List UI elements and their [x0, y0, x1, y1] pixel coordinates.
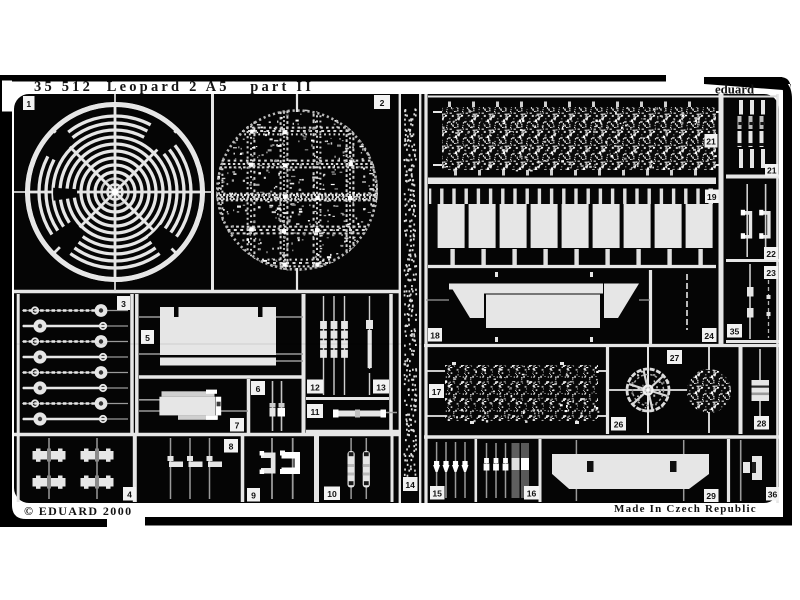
svg-text:24: 24 — [704, 331, 714, 341]
svg-text:8: 8 — [229, 441, 234, 451]
svg-text:10: 10 — [327, 489, 337, 499]
svg-text:18: 18 — [430, 330, 440, 340]
svg-text:19: 19 — [707, 192, 717, 202]
svg-text:4: 4 — [127, 489, 132, 499]
svg-text:26: 26 — [614, 419, 624, 429]
svg-text:7: 7 — [235, 420, 240, 430]
svg-text:3: 3 — [121, 299, 126, 309]
svg-text:17: 17 — [432, 387, 442, 397]
svg-text:27: 27 — [670, 353, 680, 363]
svg-text:Made In Czech Republic: Made In Czech Republic — [614, 503, 757, 515]
svg-text:1: 1 — [26, 99, 31, 109]
svg-text:2: 2 — [380, 98, 385, 108]
svg-text:9: 9 — [251, 490, 256, 500]
svg-text:12: 12 — [310, 382, 320, 392]
svg-text:6: 6 — [256, 384, 261, 394]
svg-text:29: 29 — [706, 491, 716, 501]
svg-text:28: 28 — [757, 418, 767, 428]
svg-text:13: 13 — [376, 382, 386, 392]
svg-text:15: 15 — [432, 488, 442, 498]
svg-text:14: 14 — [405, 480, 415, 490]
svg-text:22: 22 — [766, 249, 776, 259]
svg-text:35: 35 — [730, 326, 740, 336]
svg-text:© EDUARD 2000: © EDUARD 2000 — [24, 504, 133, 518]
svg-text:16: 16 — [527, 488, 537, 498]
svg-text:5: 5 — [145, 333, 150, 343]
svg-text:21: 21 — [706, 136, 716, 146]
svg-text:11: 11 — [310, 407, 319, 417]
svg-text:36: 36 — [768, 489, 778, 499]
svg-text:21: 21 — [767, 165, 777, 175]
svg-text:35 512 Leopard 2 A5 part II: 35 512 Leopard 2 A5 part II — [34, 79, 314, 95]
svg-text:23: 23 — [766, 268, 776, 278]
